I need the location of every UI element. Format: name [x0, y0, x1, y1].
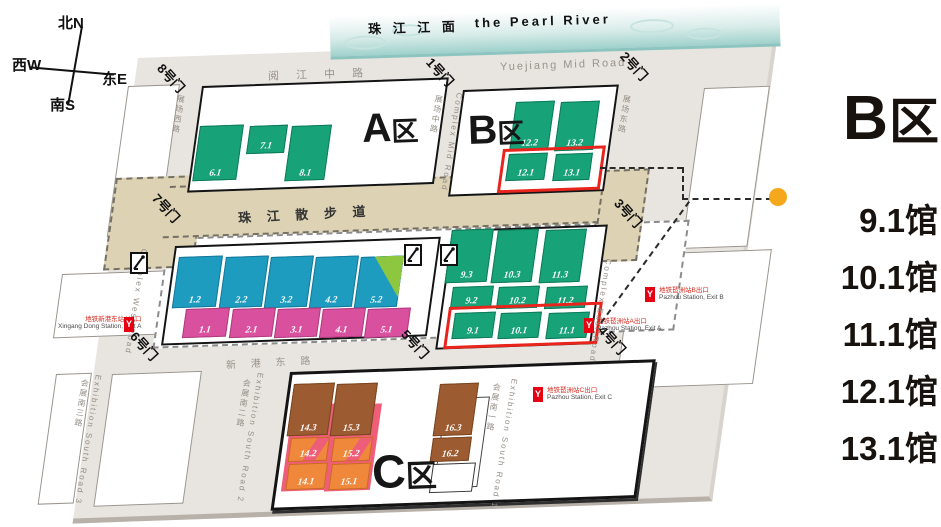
compass: 北N 西W 东E 南S — [12, 8, 132, 113]
callout-line — [682, 198, 772, 200]
hall-3-1: 3.1 — [274, 307, 321, 338]
area-b-label: B区 — [467, 105, 525, 154]
metro-exit-pazhou-a: 地铁琶洲站A出口 Pazhou Station, Exit A — [597, 318, 661, 333]
metro-exit-label-cn: 地铁琶洲站B出口 — [659, 287, 724, 294]
hall-14-1: 14.1 — [285, 463, 328, 491]
metro-icon: Y — [124, 317, 134, 332]
metro-exit-label-en: Pazhou Station, Exit B — [659, 294, 724, 301]
escalator-icon — [404, 244, 422, 266]
metro-exit-label-cn: 地铁琶洲站C出口 — [547, 387, 612, 394]
hall-3-2: 3.2 — [264, 255, 314, 308]
legend-item: 11.1馆 — [780, 306, 938, 363]
legend-item: 9.1馆 — [780, 192, 938, 249]
metro-exit-pazhou-c: 地铁琶洲站C出口 Pazhou Station, Exit C — [547, 387, 612, 402]
hall-8-1: 8.1 — [284, 125, 332, 182]
escalator-icon — [130, 252, 148, 274]
metro-icon: Y — [645, 287, 655, 302]
metro-exit-label-en: Pazhou Station, Exit A — [597, 325, 661, 332]
hall-6-1: 6.1 — [192, 124, 244, 181]
metro-exit-label-en: Pazhou Station, Exit C — [547, 394, 612, 401]
pearl-river-label-en: the Pearl River — [475, 11, 612, 34]
area-c-label: C区 — [371, 443, 437, 499]
exhibition-complex-map: 珠 江 江 面 the Pearl River 北N 西W 东E 南S 阅 江 … — [0, 0, 941, 527]
legend-item: 10.1馆 — [780, 249, 938, 306]
highlight-box-12-13 — [497, 145, 606, 193]
hall-2-1: 2.1 — [229, 307, 276, 338]
hall-2-2: 2.2 — [219, 255, 269, 308]
area-a-label: A区 — [361, 103, 419, 152]
hall-1-2: 1.2 — [172, 255, 223, 308]
hall-1-1: 1.1 — [182, 307, 230, 338]
legend-list: 9.1馆 10.1馆 11.1馆 12.1馆 13.1馆 — [780, 192, 938, 477]
ripple-icon — [344, 35, 386, 50]
hall-4-1: 4.1 — [319, 307, 366, 338]
compass-west: 西W — [12, 54, 41, 75]
legend-title: B区 — [795, 82, 940, 154]
compass-south: 南S — [50, 94, 75, 115]
metro-exit-pazhou-b: 地铁琶洲站B出口 Pazhou Station, Exit B — [659, 287, 724, 302]
hall-15-2: 15.2 — [331, 437, 373, 462]
hall-16-3: 16.3 — [433, 383, 479, 437]
hall-11-3: 11.3 — [539, 229, 587, 284]
hall-15-1: 15.1 — [328, 463, 371, 491]
metro-icon: Y — [584, 318, 594, 333]
hall-14-2: 14.2 — [288, 437, 330, 462]
hall-14-3: 14.3 — [287, 383, 335, 437]
hall-13-2: 13.2 — [554, 101, 600, 152]
callout-line — [682, 167, 684, 200]
ripple-icon — [630, 18, 674, 33]
callout-line — [600, 167, 683, 169]
legend-item: 13.1馆 — [780, 420, 938, 477]
compass-east: 东E — [102, 68, 127, 89]
pearl-river-label-cn: 珠 江 江 面 — [368, 16, 459, 38]
hall-4-2: 4.2 — [309, 255, 359, 308]
escalator-icon — [440, 244, 458, 266]
ripple-icon — [686, 27, 722, 40]
highlight-box-9-10-11 — [443, 302, 603, 350]
lot-southwest — [93, 371, 202, 507]
metro-icon: Y — [533, 387, 543, 402]
metro-exit-label-cn: 地铁琶洲站A出口 — [597, 318, 661, 325]
compass-north: 北N — [58, 12, 84, 33]
hall-15-3: 15.3 — [330, 383, 378, 437]
legend-item: 12.1馆 — [780, 363, 938, 420]
hall-10-3: 10.3 — [491, 229, 539, 284]
hall-7-1: 7.1 — [246, 125, 288, 154]
